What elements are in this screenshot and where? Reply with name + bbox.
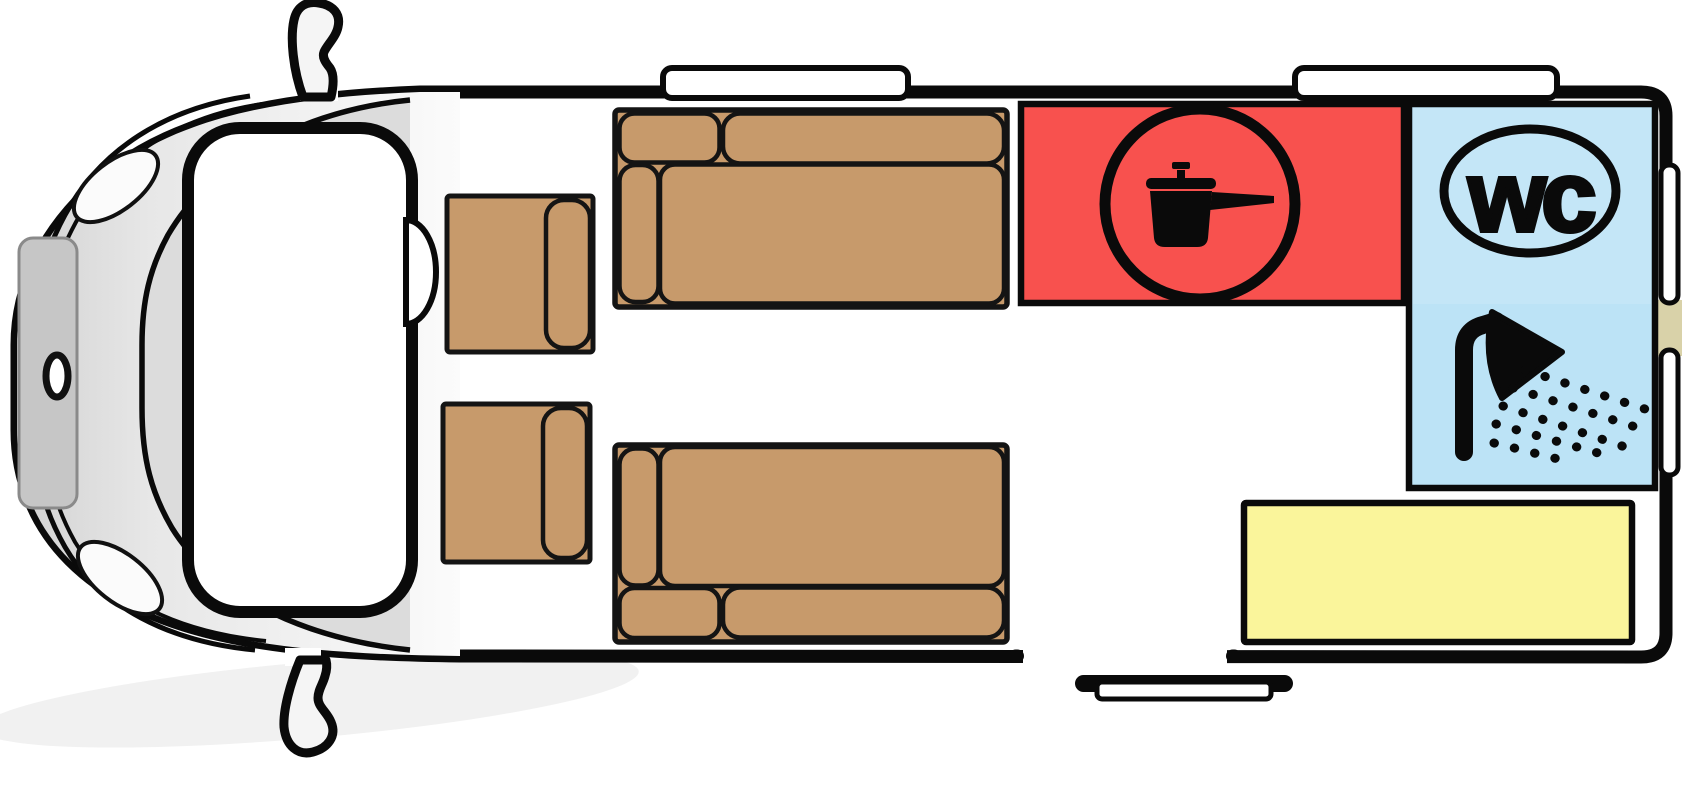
door-opening bbox=[1023, 641, 1227, 671]
entry-step bbox=[1075, 675, 1293, 699]
rear-door-handle-bottom bbox=[1661, 350, 1678, 475]
wall-cap-left bbox=[1009, 650, 1024, 663]
door-handle-icon bbox=[46, 355, 68, 397]
lounge-sofa-lower bbox=[615, 445, 1007, 642]
sofa-armrest bbox=[620, 449, 659, 586]
seat-backrest bbox=[543, 408, 587, 558]
seat-backrest bbox=[546, 200, 590, 348]
driver-cab bbox=[188, 128, 412, 612]
wc-label: wc bbox=[1467, 141, 1594, 253]
sofa-armrest bbox=[620, 165, 659, 302]
wc-shower-cabin: wc bbox=[1409, 104, 1655, 488]
campervan-floorplan: wc bbox=[0, 0, 1682, 806]
roof-window-front bbox=[663, 68, 908, 98]
rear-door-handle-top bbox=[1661, 165, 1678, 303]
side-mirror-top-icon bbox=[292, 3, 338, 97]
roof-window-rear bbox=[1295, 68, 1557, 98]
swivel-seat-upper bbox=[447, 196, 593, 352]
rear-bench bbox=[1244, 503, 1632, 642]
sofa-headrest-left bbox=[620, 114, 720, 163]
sofa-seat bbox=[660, 447, 1004, 586]
swivel-seat-lower bbox=[443, 404, 590, 562]
side-mirror-bottom-icon bbox=[284, 660, 333, 753]
wc-badge-icon: wc bbox=[1444, 129, 1616, 253]
wall-cap-right bbox=[1226, 650, 1241, 663]
rear-bench-top bbox=[1244, 503, 1632, 642]
sofa-backrest bbox=[723, 588, 1004, 638]
sofa-headrest-left bbox=[620, 588, 720, 638]
kitchen-block bbox=[1021, 104, 1404, 303]
sofa-backrest bbox=[723, 114, 1004, 164]
sofa-seat bbox=[660, 165, 1004, 304]
lounge-sofa-upper bbox=[615, 110, 1007, 307]
